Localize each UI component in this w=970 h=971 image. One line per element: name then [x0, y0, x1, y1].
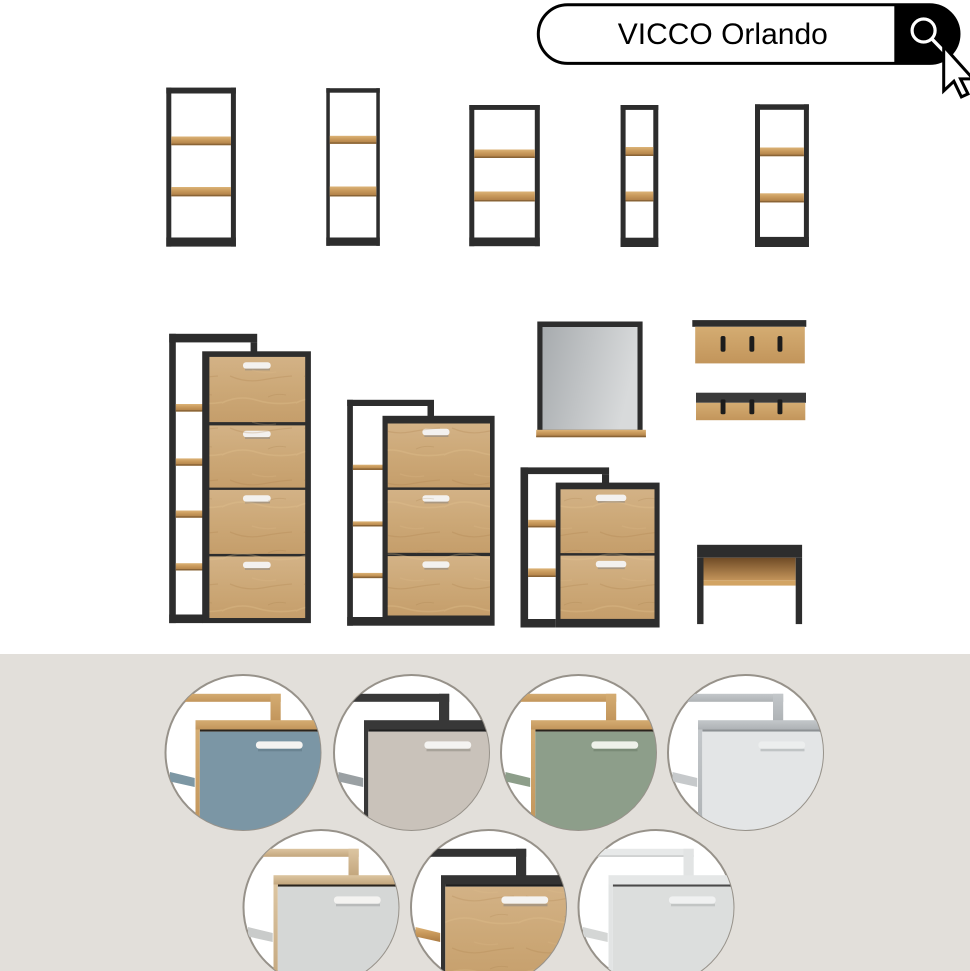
svg-text:VICCO Orlando: VICCO Orlando — [618, 18, 828, 51]
